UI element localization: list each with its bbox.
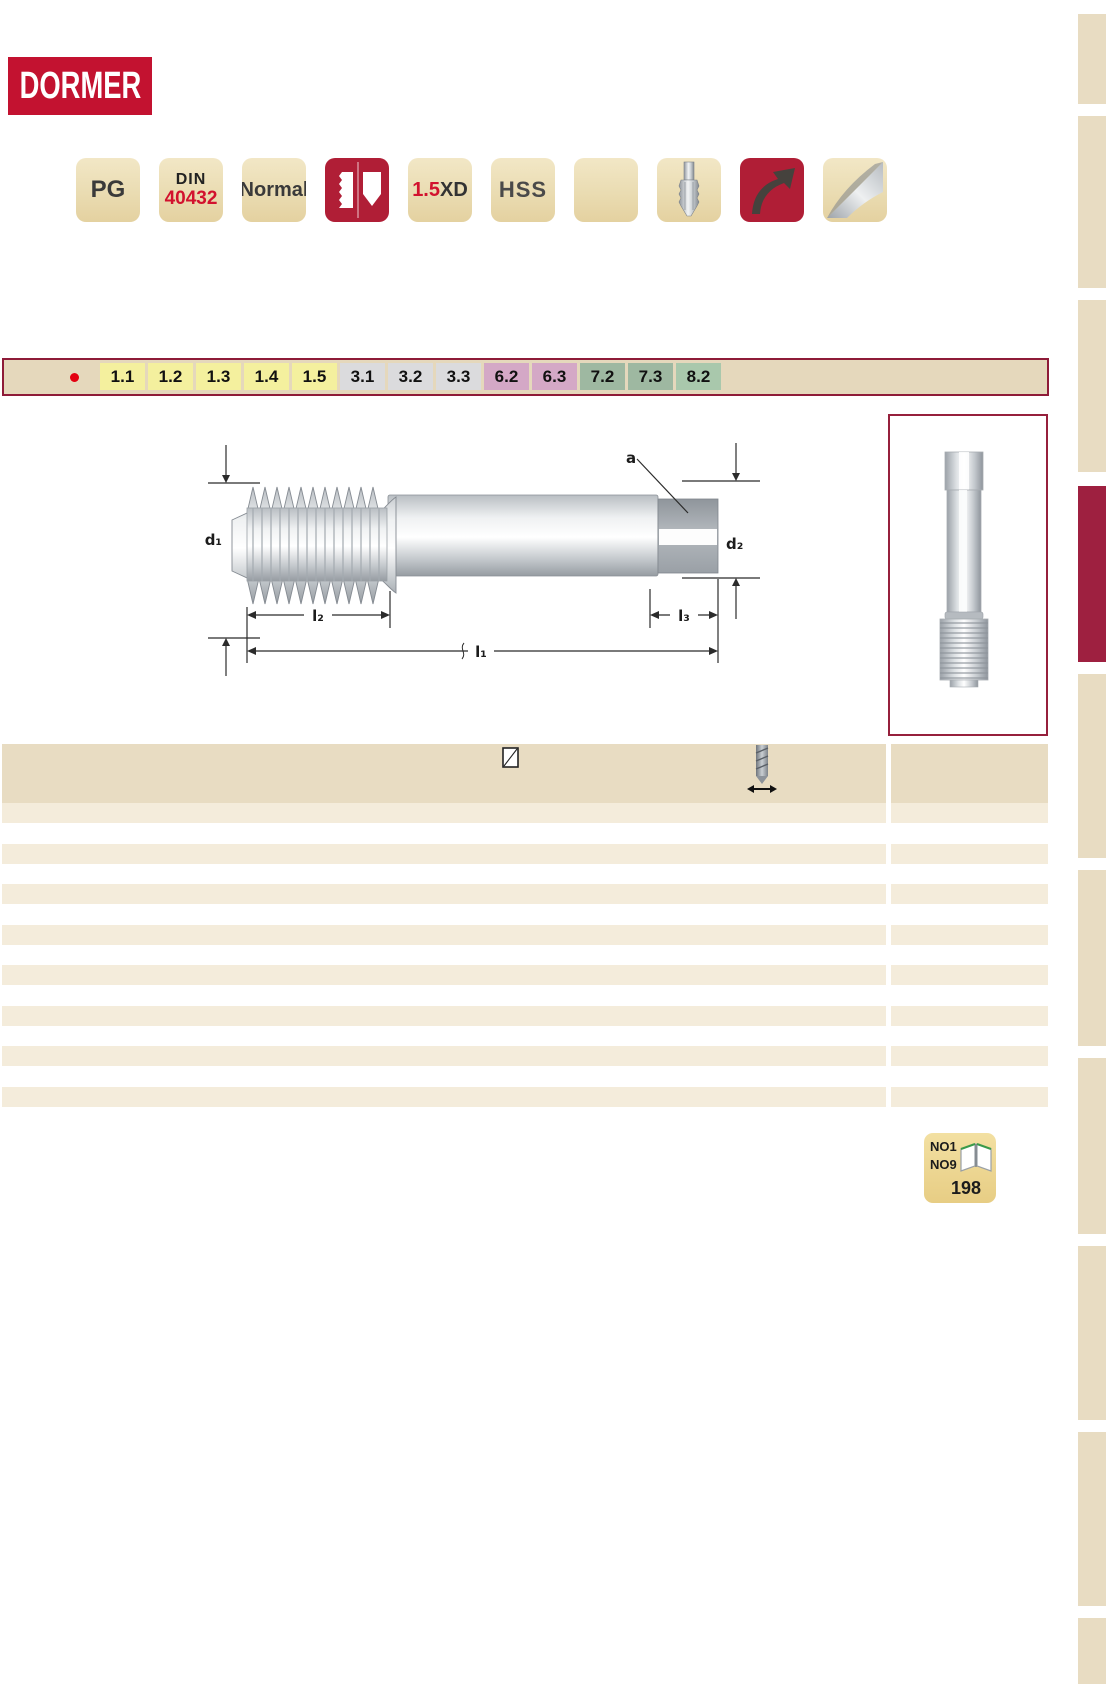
sidebar-tab [1078,870,1106,1046]
blind-through-hole-icon [325,158,389,222]
sidebar-tab [1078,14,1106,104]
page-reference-badge: NO1 NO9 198 [924,1133,996,1203]
tap-icon [657,158,721,222]
dormer-logo-text: DORMER [19,65,141,108]
applicability-cell: 3.2 [388,363,433,390]
table-header [2,744,1048,803]
table-row [2,803,1048,823]
table-rows [2,803,1048,1107]
sidebar-tabs [1078,0,1106,1684]
applicability-cell: 1.4 [244,363,289,390]
applicability-strip-cells: 1.11.21.31.41.53.13.23.36.26.37.27.38.2 [100,363,721,390]
square-symbol-icon [502,747,519,768]
badge-depth-value: 1.5 [412,179,440,202]
label-a: a [626,449,636,467]
badge-material [823,158,887,222]
table-row [2,1026,1048,1046]
table-row [2,1087,1048,1107]
drill-diameter-icon [747,745,777,793]
sidebar-tab [1078,300,1106,472]
badge-depth-suffix: XD [440,179,468,202]
sidebar-tab [1078,1058,1106,1234]
badge-din-line1: DIN [176,172,207,188]
applicability-strip: 1.11.21.31.41.53.13.23.36.26.37.27.38.2 [2,358,1049,396]
applicability-cell: 7.3 [628,363,673,390]
table-row [2,945,1048,965]
applicability-cell: 1.1 [100,363,145,390]
table-row [2,884,1048,904]
label-l1: l₁ [475,643,487,661]
tap-square-groove [659,529,717,545]
table-row [2,1066,1048,1086]
steel-material-icon [823,158,887,222]
badge-normal: Normal [242,158,306,222]
badge-pg-label: PG [91,176,126,204]
badge-pg: PG [76,158,140,222]
dormer-logo: DORMER [8,57,152,115]
applicability-cell: 3.1 [340,363,385,390]
badge-depth: 1.5XD [408,158,472,222]
sidebar-tab [1078,1432,1106,1606]
applicability-cell: 6.3 [532,363,577,390]
badge-normal-label: Normal [242,179,306,202]
catalog-page: DORMER PG DIN 40432 Normal 1.5XD HSS [0,0,1106,1684]
table-row [2,904,1048,924]
applicability-cell: 3.3 [436,363,481,390]
sidebar-tab [1078,486,1106,662]
dimension-diagram: a d₁ d₂ l₂ l₃ l₁ [60,423,760,715]
sidebar-tab [1078,1246,1106,1420]
open-book-icon [958,1140,994,1174]
table-row [2,925,1048,945]
badge-recondition [740,158,804,222]
curved-arrow-icon [740,158,804,222]
page-ref-no1: NO1 [930,1139,957,1154]
sidebar-tab [1078,1618,1106,1684]
label-l3: l₃ [678,607,690,625]
table-row [2,864,1048,884]
badge-hss-label: HSS [499,177,547,203]
applicability-cell: 8.2 [676,363,721,390]
badge-din-40432: DIN 40432 [159,158,223,222]
label-d2: d₂ [726,535,743,553]
bullet-dot-icon [70,373,79,382]
table-row [2,1006,1048,1026]
table-column-divider [886,744,891,1107]
label-l2: l₂ [312,607,324,625]
badge-hss: HSS [491,158,555,222]
hand-tap-photo [890,416,1046,734]
applicability-cell: 7.2 [580,363,625,390]
tap-shank [388,495,658,576]
applicability-cell: 1.2 [148,363,193,390]
sidebar-tab [1078,674,1106,858]
badge-blank [574,158,638,222]
table-row [2,823,1048,843]
table-row [2,985,1048,1005]
table-row [2,1046,1048,1066]
applicability-cell: 6.2 [484,363,529,390]
page-ref-number: 198 [924,1178,996,1199]
badge-hole-type [325,158,389,222]
sidebar-tab [1078,116,1106,288]
page-ref-no9: NO9 [930,1157,957,1172]
badge-din-line2: 40432 [165,189,218,208]
product-photo-box [888,414,1048,736]
badge-tap [657,158,721,222]
applicability-cell: 1.3 [196,363,241,390]
label-d1: d₁ [205,531,222,549]
applicability-cell: 1.5 [292,363,337,390]
tap-thread-flutes [247,508,387,581]
table-row [2,965,1048,985]
table-row [2,844,1048,864]
